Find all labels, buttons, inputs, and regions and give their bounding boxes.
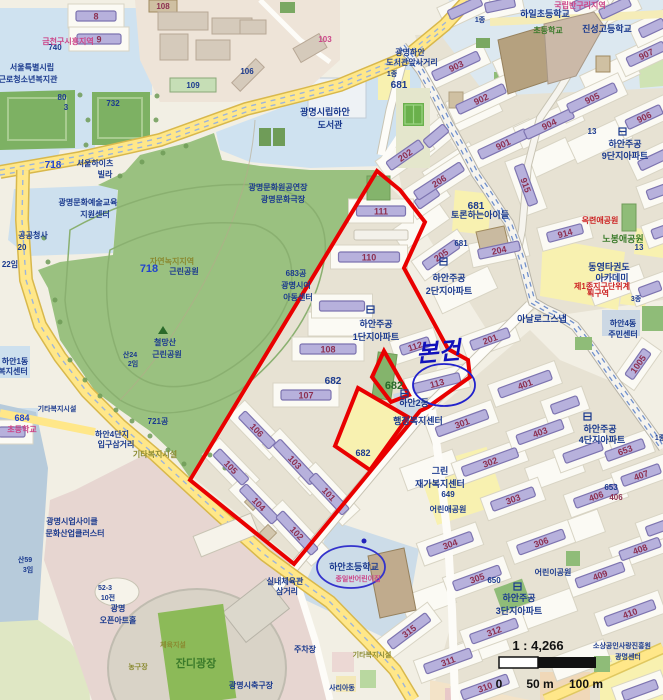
svg-text:109: 109 [186,81,200,90]
svg-text:0: 0 [496,677,503,691]
svg-text:681: 681 [454,239,468,248]
svg-text:1종: 1종 [655,434,663,442]
svg-text:52-3: 52-3 [98,585,112,592]
svg-text:산24: 산24 [123,350,137,359]
svg-text:도서관앞사거리: 도서관앞사거리 [386,57,438,67]
svg-text:732: 732 [106,99,120,108]
svg-text:3: 3 [64,103,69,112]
svg-text:광명문화원공연장: 광명문화원공연장 [249,182,309,192]
svg-text:2임: 2임 [128,359,138,368]
svg-text:하안주공: 하안주공 [608,138,641,149]
svg-text:도서관: 도서관 [318,119,344,130]
svg-text:13: 13 [588,127,597,136]
svg-text:획구역: 획구역 [587,288,609,298]
svg-text:광명시립하안: 광명시립하안 [300,106,350,117]
svg-text:농구장: 농구장 [128,662,148,671]
svg-text:종일반어린이집: 종일반어린이집 [335,574,380,583]
svg-text:3단지아파트: 3단지아파트 [496,605,543,616]
svg-text:서울특별시립: 서울특별시립 [10,62,54,72]
svg-text:650: 650 [487,576,501,585]
svg-text:광명시축구장: 광명시축구장 [229,680,274,690]
svg-text:100 m: 100 m [569,677,603,691]
svg-text:빌라: 빌라 [98,169,113,179]
svg-text:실내체육관: 실내체육관 [267,576,304,586]
svg-text:행정복지센터: 행정복지센터 [393,415,443,426]
svg-text:682: 682 [325,376,342,387]
svg-text:국립반구리지역: 국립반구리지역 [554,0,606,10]
svg-text:1단지아파트: 1단지아파트 [353,331,400,342]
svg-text:649: 649 [441,490,455,499]
svg-text:사리아동: 사리아동 [329,683,355,692]
svg-text:아날로그스냅: 아날로그스냅 [517,313,567,324]
svg-text:주차장: 주차장 [294,644,317,654]
svg-text:근린공원: 근린공원 [152,349,181,359]
svg-text:1 : 4,266: 1 : 4,266 [512,638,563,653]
svg-text:아동센터: 아동센터 [283,292,312,302]
svg-text:106: 106 [240,67,254,76]
svg-text:103: 103 [318,35,332,44]
svg-text:광명시업사이클: 광명시업사이클 [46,516,98,526]
svg-text:근린공원: 근린공원 [169,266,198,276]
svg-text:1종: 1종 [387,70,398,78]
svg-text:683공: 683공 [286,269,307,278]
svg-text:하안4동: 하안4동 [610,318,637,328]
svg-text:하안주공: 하안주공 [432,272,465,283]
svg-text:110: 110 [362,252,377,262]
svg-text:기타복지시설: 기타복지시설 [353,650,392,659]
svg-text:산59: 산59 [18,555,32,564]
svg-text:20: 20 [18,243,27,252]
svg-text:오픈아트홀: 오픈아트홀 [100,615,137,625]
svg-text:하안주공: 하안주공 [359,318,392,329]
svg-text:광명: 광명 [111,603,126,613]
svg-text:공공청사: 공공청사 [18,230,48,240]
svg-text:하안1동: 하안1동 [2,356,29,366]
svg-text:1종: 1종 [475,16,486,24]
svg-text:기타복지시설: 기타복지시설 [38,404,77,413]
svg-text:옥련애공원: 옥련애공원 [582,215,619,225]
svg-text:3임: 3임 [23,565,33,574]
svg-text:22임: 22임 [2,259,18,269]
svg-text:13: 13 [635,243,644,252]
svg-text:잔디광장: 잔디광장 [176,656,216,670]
svg-text:입구삼거리: 입구삼거리 [98,439,135,449]
svg-text:3종: 3종 [631,295,642,303]
svg-text:8: 8 [93,11,98,21]
svg-text:광명문화극장: 광명문화극장 [261,194,306,204]
svg-text:682: 682 [355,448,370,458]
svg-text:718: 718 [140,263,158,275]
svg-text:광명문화예술교육: 광명문화예술교육 [59,197,119,207]
svg-text:108: 108 [156,2,170,11]
svg-text:684: 684 [14,413,29,423]
svg-text:9단지아파트: 9단지아파트 [602,150,649,161]
svg-text:금천구시흥지역: 금천구시흥지역 [42,36,94,46]
svg-text:문화산업클러스터: 문화산업클러스터 [46,528,105,538]
svg-text:동영타권도: 동영타권도 [588,261,630,272]
svg-text:80: 80 [58,93,67,102]
svg-text:50 m: 50 m [526,677,553,691]
svg-text:하안4단지: 하안4단지 [95,429,129,439]
svg-text:지원센터: 지원센터 [80,209,109,219]
svg-text:초등학교: 초등학교 [7,424,37,434]
svg-text:광명하안: 광명하안 [395,47,425,57]
svg-text:주민센터: 주민센터 [608,329,637,339]
svg-text:107: 107 [298,390,313,400]
svg-text:681: 681 [391,80,408,91]
svg-text:본건: 본건 [415,337,464,368]
svg-text:초등학교: 초등학교 [533,25,563,35]
svg-text:소상공인사랑진흥원: 소상공인사랑진흥원 [593,641,651,650]
svg-text:하안2동: 하안2동 [399,397,429,408]
svg-text:광명센터: 광명센터 [615,652,641,661]
svg-text:광명시여: 광명시여 [281,280,310,290]
svg-text:하안주공: 하안주공 [502,592,535,603]
svg-text:2단지아파트: 2단지아파트 [426,285,473,296]
svg-text:108: 108 [320,344,335,354]
svg-text:9: 9 [96,34,101,44]
svg-text:서울하이츠: 서울하이츠 [77,158,114,168]
svg-text:어린이공원: 어린이공원 [535,567,572,577]
svg-text:681: 681 [468,201,485,212]
svg-text:111: 111 [374,206,388,216]
svg-text:진성고등학교: 진성고등학교 [582,23,632,34]
svg-text:삼거리: 삼거리 [276,586,298,596]
svg-text:그린: 그린 [432,466,449,476]
svg-text:체육지설: 체육지설 [160,640,186,649]
svg-text:4단지아파트: 4단지아파트 [579,434,626,445]
svg-text:근로청소년복지관: 근로청소년복지관 [0,74,58,84]
svg-text:653: 653 [604,483,618,492]
svg-text:기타복지시설: 기타복지시설 [133,449,177,459]
svg-text:하안주공: 하안주공 [583,423,616,434]
svg-text:10전: 10전 [101,593,115,602]
svg-text:복지센터: 복지센터 [0,366,28,376]
svg-text:718: 718 [45,160,62,171]
svg-text:재가복지센터: 재가복지센터 [415,478,465,489]
svg-text:어린애공원: 어린애공원 [430,504,467,514]
svg-text:406: 406 [609,493,623,502]
svg-text:721공: 721공 [148,417,169,426]
svg-text:하안초등학교: 하안초등학교 [329,561,379,572]
svg-text:철망산: 철망산 [154,337,177,347]
